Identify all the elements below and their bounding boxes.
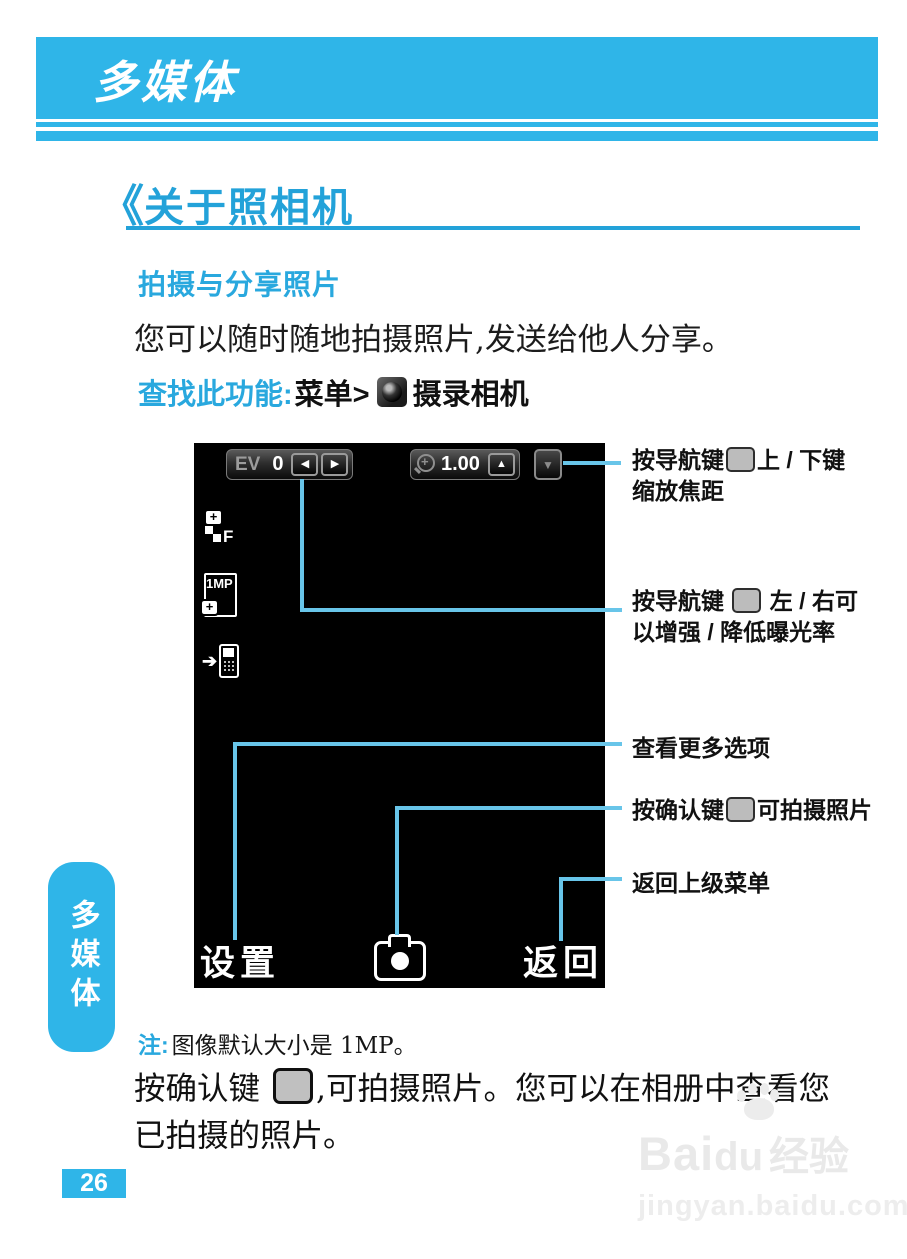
header-banner: 多媒体 <box>36 37 878 119</box>
page-number-badge: 26 <box>62 1169 126 1198</box>
callout-line-ev-vertical <box>300 479 304 612</box>
flash-mode-icon: + F <box>202 509 242 557</box>
ev-increase-button[interactable]: ▶ <box>321 453 348 476</box>
zoom-control: 1.00 ▲ <box>410 449 520 480</box>
watermark-url: jingyan.baidu.com <box>638 1190 907 1223</box>
callout-ev: 按导航键 左 / 右可 以增强 / 降低曝光率 <box>632 586 907 648</box>
section-heading: 《 关于照相机 <box>100 170 354 234</box>
settings-softkey[interactable]: 设置 <box>200 935 280 986</box>
outro-line1: 按确认键 ,可拍摄照片。您可以在相册中查看您 <box>134 1066 830 1113</box>
banner-stripe-thin <box>36 122 878 127</box>
zoom-in-button[interactable]: ▲ <box>488 453 515 476</box>
section-marker-icon: 《 <box>100 170 144 234</box>
sidebar-chapter-tab: 多媒体 <box>48 862 115 1052</box>
camera-viewfinder: EV 0 ◀ ▶ 1.00 ▲ ▼ + F 1MP + <box>194 443 605 988</box>
note-label: 注: <box>138 1026 169 1060</box>
callout-options: 查看更多选项 <box>632 733 907 764</box>
manual-page: 多媒体 《 关于照相机 拍摄与分享照片 您可以随时随地拍摄照片,发送给他人分享。… <box>0 0 907 1259</box>
flash-mode-label: F <box>223 527 233 547</box>
page-title: 多媒体 <box>36 46 237 111</box>
callout-line-options-horizontal <box>233 742 622 746</box>
callout-line-options-vertical <box>233 742 237 940</box>
camera-menu-icon <box>377 377 407 407</box>
callout-zoom: 按导航键上 / 下键 缩放焦距 <box>632 445 907 507</box>
callout-zoom-line2: 缩放焦距 <box>632 476 907 507</box>
note-line: 注: 图像默认大小是 1MP。 <box>138 1026 417 1060</box>
intro-paragraph: 您可以随时随地拍摄照片,发送给他人分享。 <box>134 314 733 359</box>
menu-path-suffix: 摄录相机 <box>413 371 529 413</box>
magnifier-icon <box>417 454 435 472</box>
callout-back: 返回上级菜单 <box>632 868 907 899</box>
callout-line-shutter-horizontal <box>395 806 622 810</box>
ev-value: 0 <box>272 453 283 476</box>
status-icon-column: + F 1MP + ➔ <box>202 509 246 683</box>
ev-label: EV <box>235 454 260 476</box>
menu-path: 菜单> <box>295 371 370 413</box>
note-text: 图像默认大小是 1MP。 <box>172 1026 417 1060</box>
zoom-out-button[interactable]: ▼ <box>534 449 562 480</box>
ok-key-icon <box>273 1068 313 1104</box>
find-feature-line: 查找此功能: 菜单> 摄录相机 <box>138 371 529 413</box>
section-title: 关于照相机 <box>144 175 354 233</box>
image-size-icon: 1MP + <box>202 573 242 623</box>
callout-line-back-horizontal <box>559 877 622 881</box>
section-underline <box>126 226 860 230</box>
chevron-down-icon: ▼ <box>542 458 554 472</box>
banner-stripe-thick <box>36 131 878 141</box>
callout-line-back-vertical <box>559 877 563 941</box>
callout-line-shutter-vertical <box>395 806 399 935</box>
watermark: Bai du 经验 jingyan.baidu.com <box>638 1124 907 1223</box>
ev-control: EV 0 ◀ ▶ <box>226 449 353 480</box>
paw-icon <box>744 1098 774 1120</box>
watermark-brand: Bai du 经验 <box>638 1124 907 1182</box>
nav-key-icon <box>726 447 755 472</box>
shutter-camera-icon[interactable] <box>374 941 426 981</box>
phone-icon <box>219 644 239 678</box>
storage-location-icon: ➔ <box>202 639 246 683</box>
ev-decrease-button[interactable]: ◀ <box>291 453 318 476</box>
callout-line-ev-horizontal <box>300 608 622 612</box>
sidebar-chapter-label: 多媒体 <box>60 899 104 1016</box>
subsection-title: 拍摄与分享照片 <box>138 263 341 303</box>
callout-shutter: 按确认键可拍摄照片 <box>632 795 907 826</box>
callout-line-zoom <box>563 461 621 465</box>
image-size-label: 1MP <box>206 576 233 591</box>
callout-ev-line2: 以增强 / 降低曝光率 <box>632 617 907 648</box>
zoom-value: 1.00 <box>441 453 480 476</box>
nav-key-icon <box>732 588 761 613</box>
back-softkey[interactable]: 返回 <box>523 935 603 986</box>
find-feature-label: 查找此功能: <box>138 371 293 413</box>
arrow-right-icon: ➔ <box>202 651 217 672</box>
ok-key-icon <box>726 797 755 822</box>
